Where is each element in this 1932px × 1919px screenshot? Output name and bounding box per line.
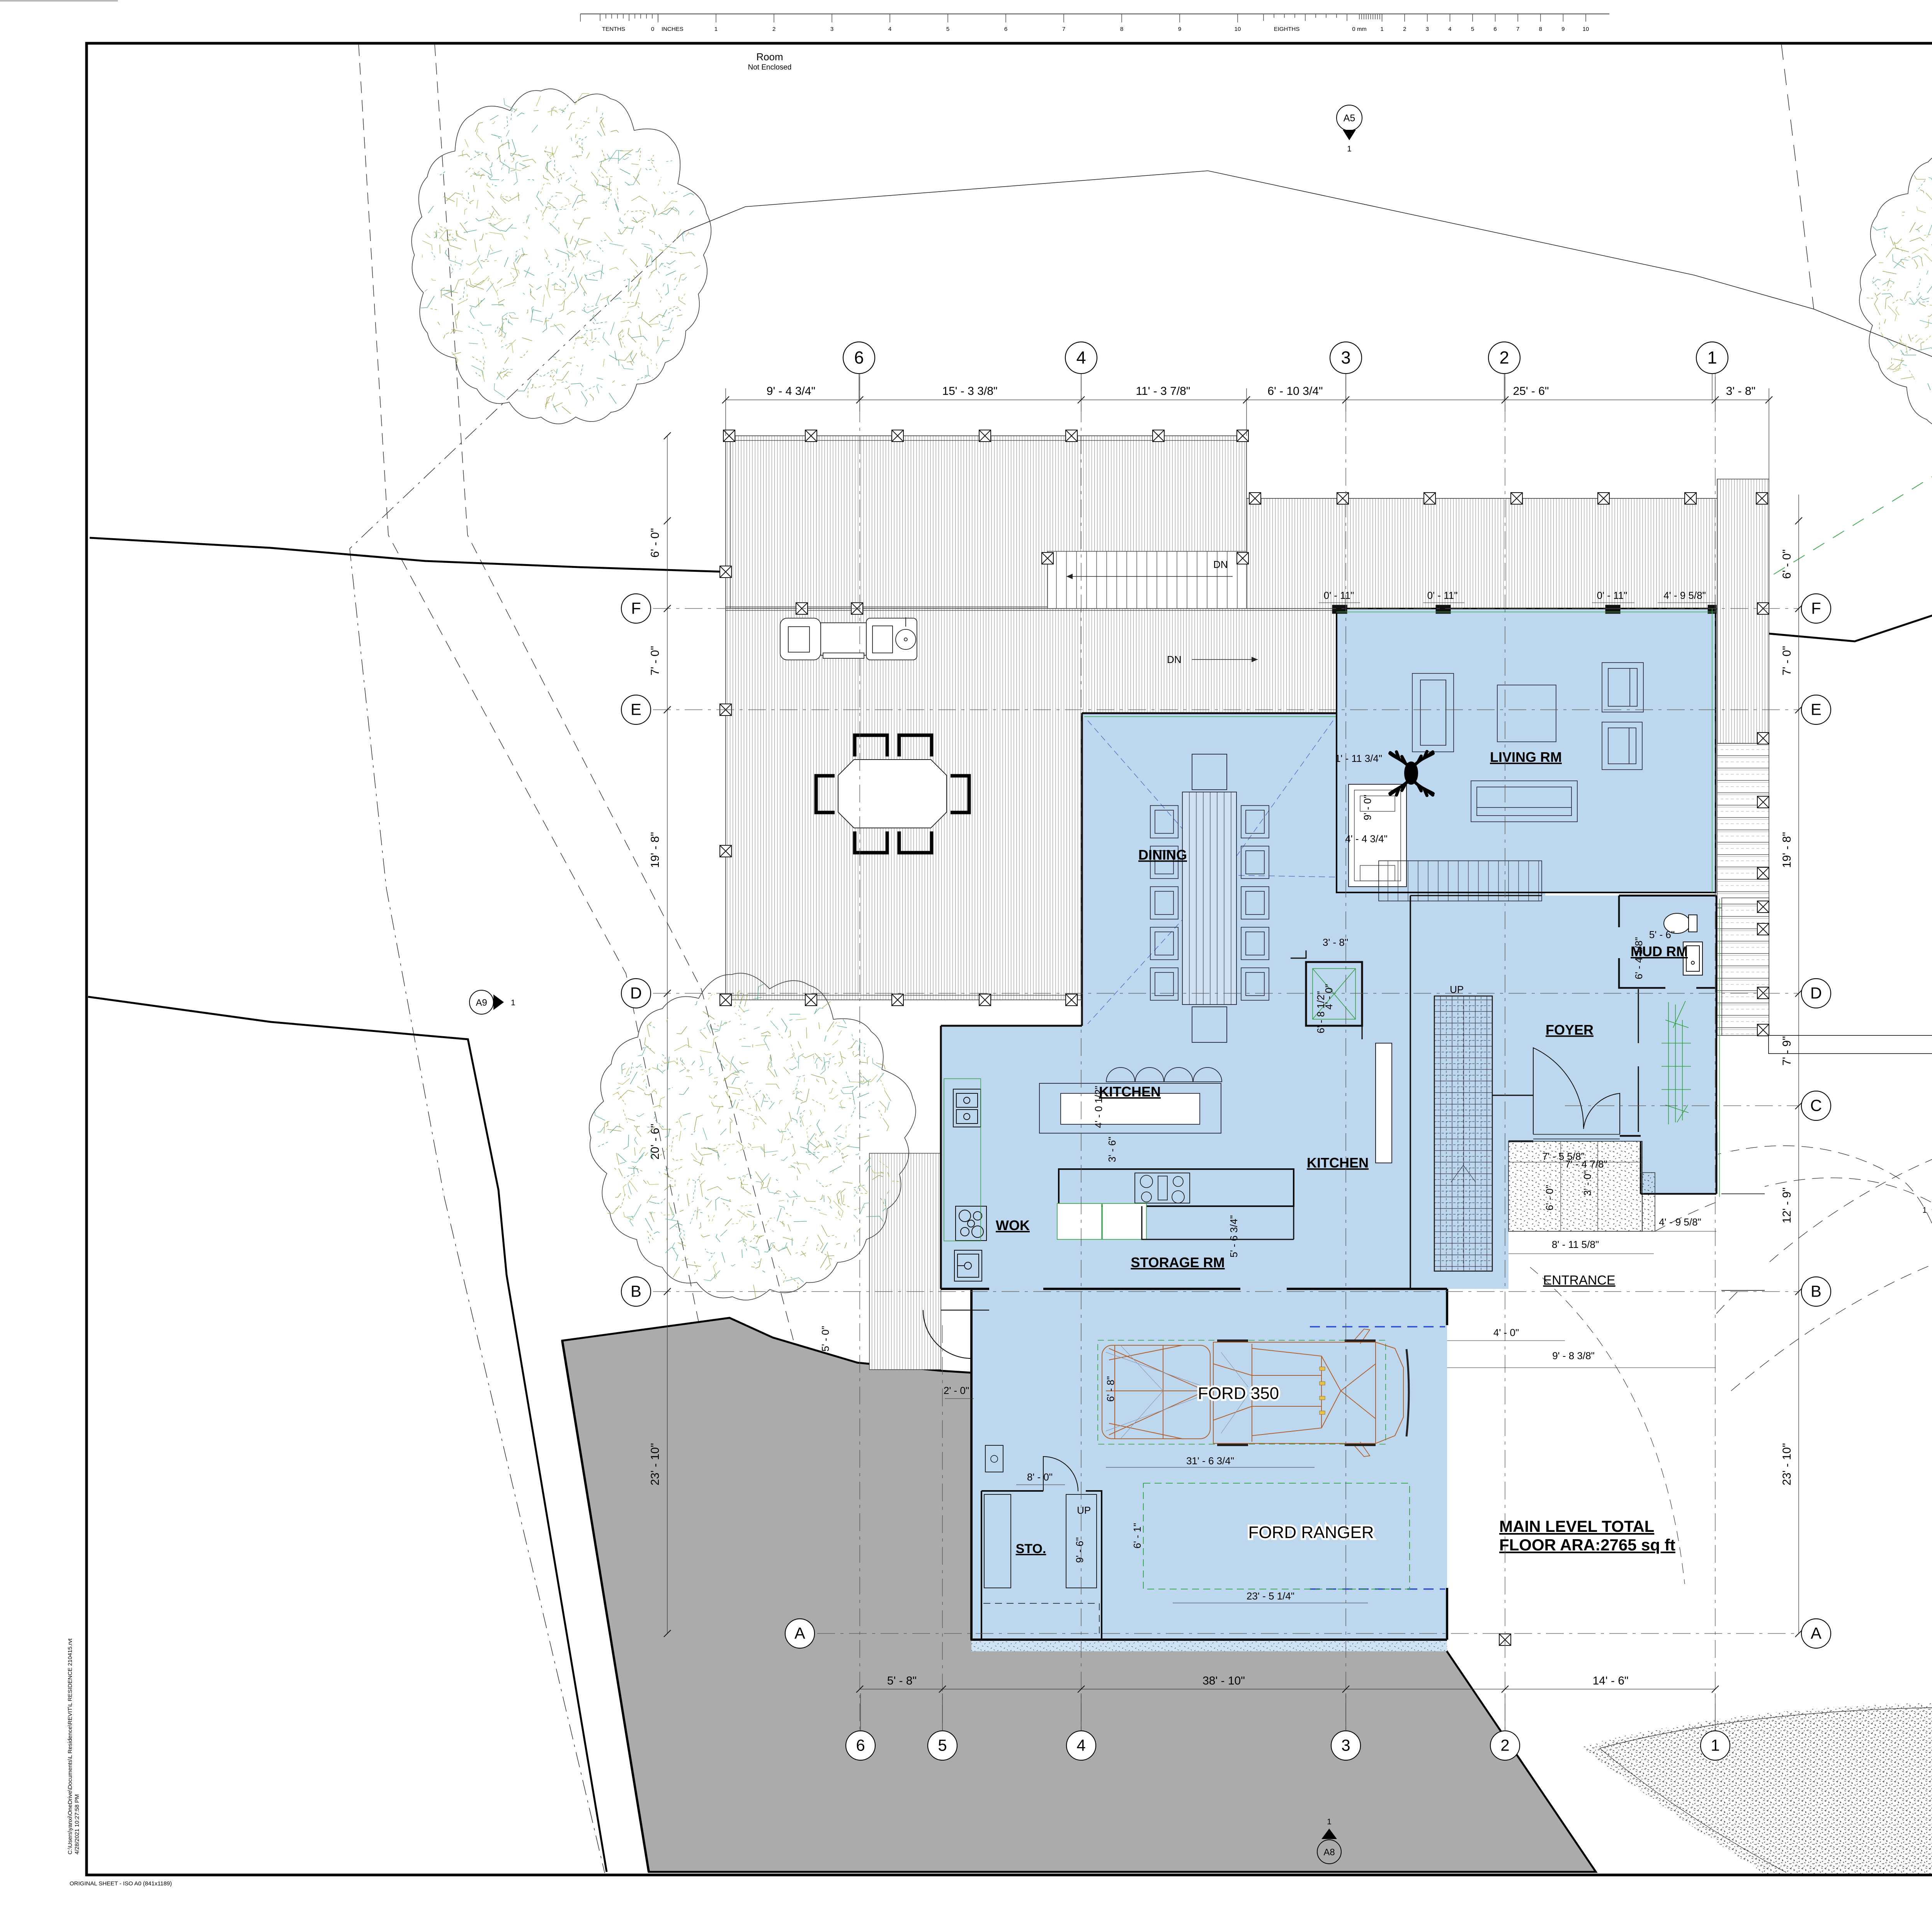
svg-text:MAIN LEVEL TOTAL: MAIN LEVEL TOTAL: [1499, 1517, 1654, 1535]
svg-text:6' - 8": 6' - 8": [1105, 1376, 1116, 1402]
svg-text:20' - 6": 20' - 6": [649, 1124, 662, 1159]
svg-text:A8: A8: [1323, 1847, 1335, 1858]
svg-text:0' - 11": 0' - 11": [1597, 590, 1628, 601]
svg-text:2: 2: [1499, 348, 1509, 367]
svg-text:3: 3: [1341, 1736, 1350, 1754]
svg-text:FOYER: FOYER: [1546, 1022, 1594, 1038]
svg-text:7' - 0": 7' - 0": [649, 646, 662, 675]
svg-text:14' - 6": 14' - 6": [1592, 1674, 1628, 1687]
svg-text:DN: DN: [1167, 654, 1182, 665]
svg-text:0' - 11": 0' - 11": [1427, 590, 1458, 601]
svg-text:38' - 10": 38' - 10": [1202, 1674, 1245, 1687]
svg-text:DINING: DINING: [1138, 847, 1187, 863]
svg-text:4' - 4 3/4": 4' - 4 3/4": [1345, 833, 1388, 845]
svg-text:TENTHS: TENTHS: [602, 26, 625, 32]
svg-text:19' - 8": 19' - 8": [1781, 832, 1793, 868]
svg-text:EIGHTHS: EIGHTHS: [1274, 26, 1300, 32]
svg-text:6' - 0": 6' - 0": [1544, 1185, 1555, 1210]
svg-text:F: F: [631, 599, 641, 617]
svg-text:6' - 10 3/4": 6' - 10 3/4": [1267, 385, 1323, 398]
svg-text:6: 6: [1493, 26, 1497, 32]
svg-text:1: 1: [1327, 1817, 1332, 1826]
svg-text:7' - 0": 7' - 0": [1781, 646, 1793, 675]
svg-text:1: 1: [511, 998, 515, 1007]
svg-text:D: D: [1810, 984, 1822, 1002]
svg-text:2: 2: [772, 26, 776, 32]
svg-text:4' - 0": 4' - 0": [1493, 1327, 1519, 1338]
svg-text:A5: A5: [1344, 113, 1355, 124]
svg-text:0: 0: [651, 26, 654, 32]
svg-text:ORIGINAL SHEET - ISO A0 (841x1: ORIGINAL SHEET - ISO A0 (841x1189): [70, 1880, 172, 1887]
svg-text:7: 7: [1062, 26, 1065, 32]
svg-text:C: C: [1810, 1096, 1822, 1115]
svg-text:2: 2: [1403, 26, 1406, 32]
svg-text:FORD 350: FORD 350: [1198, 1384, 1279, 1403]
svg-text:3: 3: [1426, 26, 1429, 32]
svg-text:F: F: [1811, 599, 1821, 617]
svg-text:FLOOR ARA:2765 sq ft: FLOOR ARA:2765 sq ft: [1499, 1536, 1675, 1554]
svg-text:10: 10: [1583, 26, 1589, 32]
svg-text:B: B: [631, 1282, 641, 1300]
svg-text:25' - 6": 25' - 6": [1513, 385, 1549, 398]
svg-text:9' - 0": 9' - 0": [1362, 795, 1373, 820]
svg-text:5: 5: [946, 26, 949, 32]
svg-text:LIVING RM: LIVING RM: [1490, 749, 1562, 765]
svg-text:5' - 8": 5' - 8": [887, 1674, 917, 1687]
svg-text:5: 5: [938, 1736, 947, 1754]
svg-text:8' - 0": 8' - 0": [1027, 1471, 1053, 1483]
svg-text:5' - 6 3/4": 5' - 6 3/4": [1228, 1215, 1240, 1258]
svg-text:12' - 9": 12' - 9": [1781, 1187, 1793, 1223]
svg-text:0 mm: 0 mm: [1352, 26, 1367, 32]
svg-text:E: E: [1811, 700, 1821, 719]
svg-text:WOK: WOK: [996, 1217, 1030, 1233]
svg-text:9' - 8 3/8": 9' - 8 3/8": [1552, 1350, 1595, 1361]
svg-text:10: 10: [1235, 26, 1241, 32]
svg-text:DN: DN: [1213, 559, 1228, 570]
svg-text:4' - 9 5/8": 4' - 9 5/8": [1659, 1216, 1701, 1228]
svg-text:3: 3: [1341, 348, 1350, 367]
svg-text:6' - 0": 6' - 0": [649, 528, 662, 558]
svg-text:4: 4: [1077, 1736, 1085, 1754]
svg-text:0' - 11": 0' - 11": [1324, 590, 1354, 601]
svg-text:6: 6: [1004, 26, 1007, 32]
svg-text:4: 4: [1448, 26, 1451, 32]
svg-text:3' - 0": 3' - 0": [1582, 1170, 1593, 1196]
svg-text:Room: Room: [756, 51, 783, 63]
svg-text:8: 8: [1539, 26, 1542, 32]
svg-text:B: B: [1811, 1282, 1821, 1300]
svg-text:A9: A9: [476, 998, 487, 1008]
svg-text:1: 1: [1347, 144, 1352, 153]
svg-text:1: 1: [1922, 1206, 1927, 1215]
svg-text:3' - 8": 3' - 8": [1726, 385, 1755, 398]
svg-text:9' - 6": 9' - 6": [1074, 1537, 1085, 1563]
svg-text:1: 1: [1711, 1736, 1719, 1754]
svg-text:KITCHEN: KITCHEN: [1099, 1084, 1161, 1100]
svg-text:A: A: [794, 1624, 805, 1642]
svg-text:6' - 1": 6' - 1": [1131, 1523, 1143, 1548]
svg-text:Not Enclosed: Not Enclosed: [748, 63, 791, 71]
svg-text:6: 6: [856, 1736, 865, 1754]
svg-text:23' - 10": 23' - 10": [649, 1443, 662, 1486]
svg-text:19' - 8": 19' - 8": [649, 832, 662, 868]
svg-text:1: 1: [1380, 26, 1383, 32]
svg-text:23' - 10": 23' - 10": [1781, 1443, 1793, 1486]
svg-text:A: A: [1811, 1624, 1821, 1642]
svg-text:4/28/2021 10:27:58 PM: 4/28/2021 10:27:58 PM: [74, 1794, 80, 1854]
svg-text:3: 3: [830, 26, 833, 32]
svg-text:4: 4: [1076, 348, 1086, 367]
svg-text:UP: UP: [1077, 1504, 1091, 1516]
svg-text:11' - 3 7/8": 11' - 3 7/8": [1136, 385, 1190, 398]
svg-text:1: 1: [714, 26, 718, 32]
svg-text:4: 4: [888, 26, 891, 32]
svg-text:FORD RANGER: FORD RANGER: [1248, 1523, 1374, 1542]
svg-text:5' - 0": 5' - 0": [820, 1326, 831, 1351]
svg-text:2' - 0": 2' - 0": [944, 1385, 969, 1396]
svg-text:23' - 5 1/4": 23' - 5 1/4": [1247, 1590, 1294, 1602]
svg-text:KITCHEN: KITCHEN: [1307, 1155, 1369, 1171]
svg-text:4' - 0": 4' - 0": [1323, 984, 1335, 1010]
svg-text:7: 7: [1516, 26, 1519, 32]
svg-text:7' - 9": 7' - 9": [1781, 1036, 1793, 1066]
svg-text:5' - 6": 5' - 6": [1649, 929, 1675, 940]
svg-text:ENTRANCE: ENTRANCE: [1543, 1273, 1615, 1288]
svg-text:1' - 11 3/4": 1' - 11 3/4": [1335, 753, 1382, 764]
svg-text:INCHES: INCHES: [662, 26, 684, 32]
svg-text:6: 6: [854, 348, 864, 367]
svg-text:6' - 0": 6' - 0": [1781, 549, 1793, 579]
svg-text:9: 9: [1178, 26, 1181, 32]
svg-text:9' - 4 3/4": 9' - 4 3/4": [767, 385, 815, 398]
svg-text:1: 1: [1707, 348, 1717, 367]
svg-text:3' - 8": 3' - 8": [1323, 937, 1348, 948]
svg-text:E: E: [631, 700, 641, 719]
svg-text:9: 9: [1561, 26, 1565, 32]
svg-text:4' - 9 5/8": 4' - 9 5/8": [1663, 590, 1706, 601]
svg-text:8: 8: [1120, 26, 1123, 32]
svg-text:7' - 4 7/8": 7' - 4 7/8": [1565, 1158, 1607, 1170]
svg-text:3' - 6": 3' - 6": [1106, 1137, 1118, 1162]
svg-text:15' - 3 3/8": 15' - 3 3/8": [942, 385, 997, 398]
svg-text:8' - 11 5/8": 8' - 11 5/8": [1552, 1239, 1599, 1250]
svg-text:31' - 6 3/4": 31' - 6 3/4": [1186, 1455, 1234, 1467]
svg-text:2: 2: [1500, 1736, 1509, 1754]
svg-text:D: D: [630, 984, 642, 1002]
svg-text:STO.: STO.: [1016, 1542, 1046, 1556]
svg-text:STORAGE RM: STORAGE RM: [1131, 1254, 1225, 1270]
svg-text:C:\Users\yanxi\OneDrive\Docume: C:\Users\yanxi\OneDrive\Documents\L Resi…: [67, 1638, 73, 1854]
svg-text:4' - 0 1/2": 4' - 0 1/2": [1093, 1086, 1104, 1128]
svg-text:6' - 4 1/8": 6' - 4 1/8": [1633, 937, 1645, 979]
svg-text:5: 5: [1471, 26, 1474, 32]
